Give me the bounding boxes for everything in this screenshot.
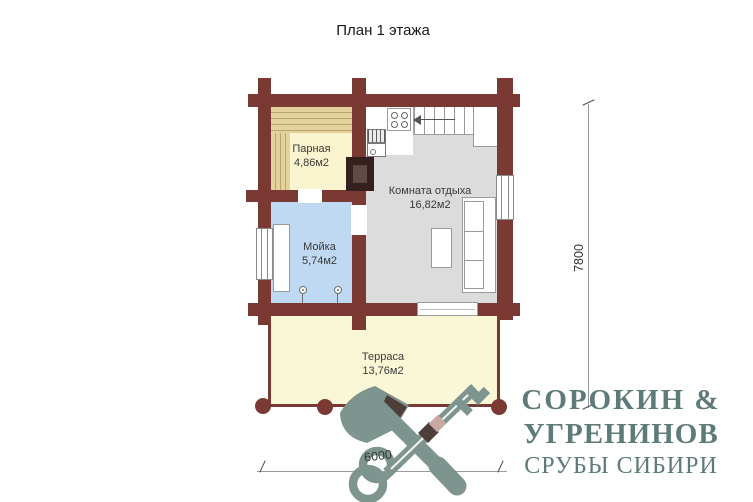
shower-head-icon	[334, 286, 342, 294]
window-komnata	[496, 175, 514, 220]
logo-tagline: СРУБЫ СИБИРИ	[505, 452, 737, 481]
label-terrasa: Терраса 13,76м2	[321, 350, 445, 378]
room-area: 5,74м2	[277, 254, 362, 268]
stairs-landing	[473, 104, 497, 147]
company-logo: СОРОКИН & УГРЕНИНОВ СРУБЫ СИБИРИ	[505, 384, 737, 481]
label-komnata: Комната отдыха 16,82м2	[369, 184, 491, 212]
floor-plan-page: План 1 этажа	[0, 0, 753, 502]
stove-burner-icon	[401, 112, 408, 119]
sauna-stove-door	[353, 165, 367, 183]
terrace-edge-left	[268, 316, 271, 406]
window-moyka	[256, 228, 273, 280]
door-moyka-komnata	[351, 205, 367, 235]
water-heater	[367, 129, 386, 143]
shower-head-icon	[299, 286, 307, 294]
dimension-height: 7800	[572, 236, 586, 280]
label-moyka: Мойка 5,74м2	[277, 240, 362, 268]
logo-line2: УГРЕНИНОВ	[505, 417, 737, 452]
label-parnaya: Парная 4,86м2	[271, 142, 352, 170]
room-name: Терраса	[321, 350, 445, 364]
terrace-post	[317, 399, 333, 415]
room-name: Парная	[271, 142, 352, 156]
terrace-post	[255, 398, 271, 414]
sofa-cushion-divider	[465, 231, 483, 232]
logo-line1: СОРОКИН &	[505, 384, 737, 417]
sofa-cushion-divider	[465, 260, 483, 261]
room-area: 16,82м2	[369, 198, 491, 212]
stove-burner-icon	[391, 121, 398, 128]
kitchen-sink	[367, 143, 386, 157]
room-area: 13,76м2	[321, 364, 445, 378]
stairs-direction-arrow-icon	[413, 115, 421, 125]
wall-bottom	[248, 303, 520, 316]
room-area: 4,86м2	[271, 156, 352, 170]
door-terrace	[417, 302, 478, 316]
wall-middle-vertical	[352, 78, 366, 330]
stove-burner-icon	[401, 121, 408, 128]
stairs-direction-line	[421, 119, 455, 120]
dimension-line-right	[588, 104, 589, 408]
table	[431, 228, 452, 268]
axe-and-key-icon	[335, 378, 517, 502]
parnaya-bench-top	[271, 107, 352, 133]
room-name: Мойка	[277, 240, 362, 254]
stove-burner-icon	[391, 112, 398, 119]
kitchen-stove	[387, 108, 411, 131]
page-title: План 1 этажа	[283, 22, 483, 39]
sofa-cushions	[464, 201, 484, 289]
door-parnaya	[298, 189, 322, 203]
room-name: Комната отдыха	[369, 184, 491, 198]
wall-top	[248, 94, 520, 107]
